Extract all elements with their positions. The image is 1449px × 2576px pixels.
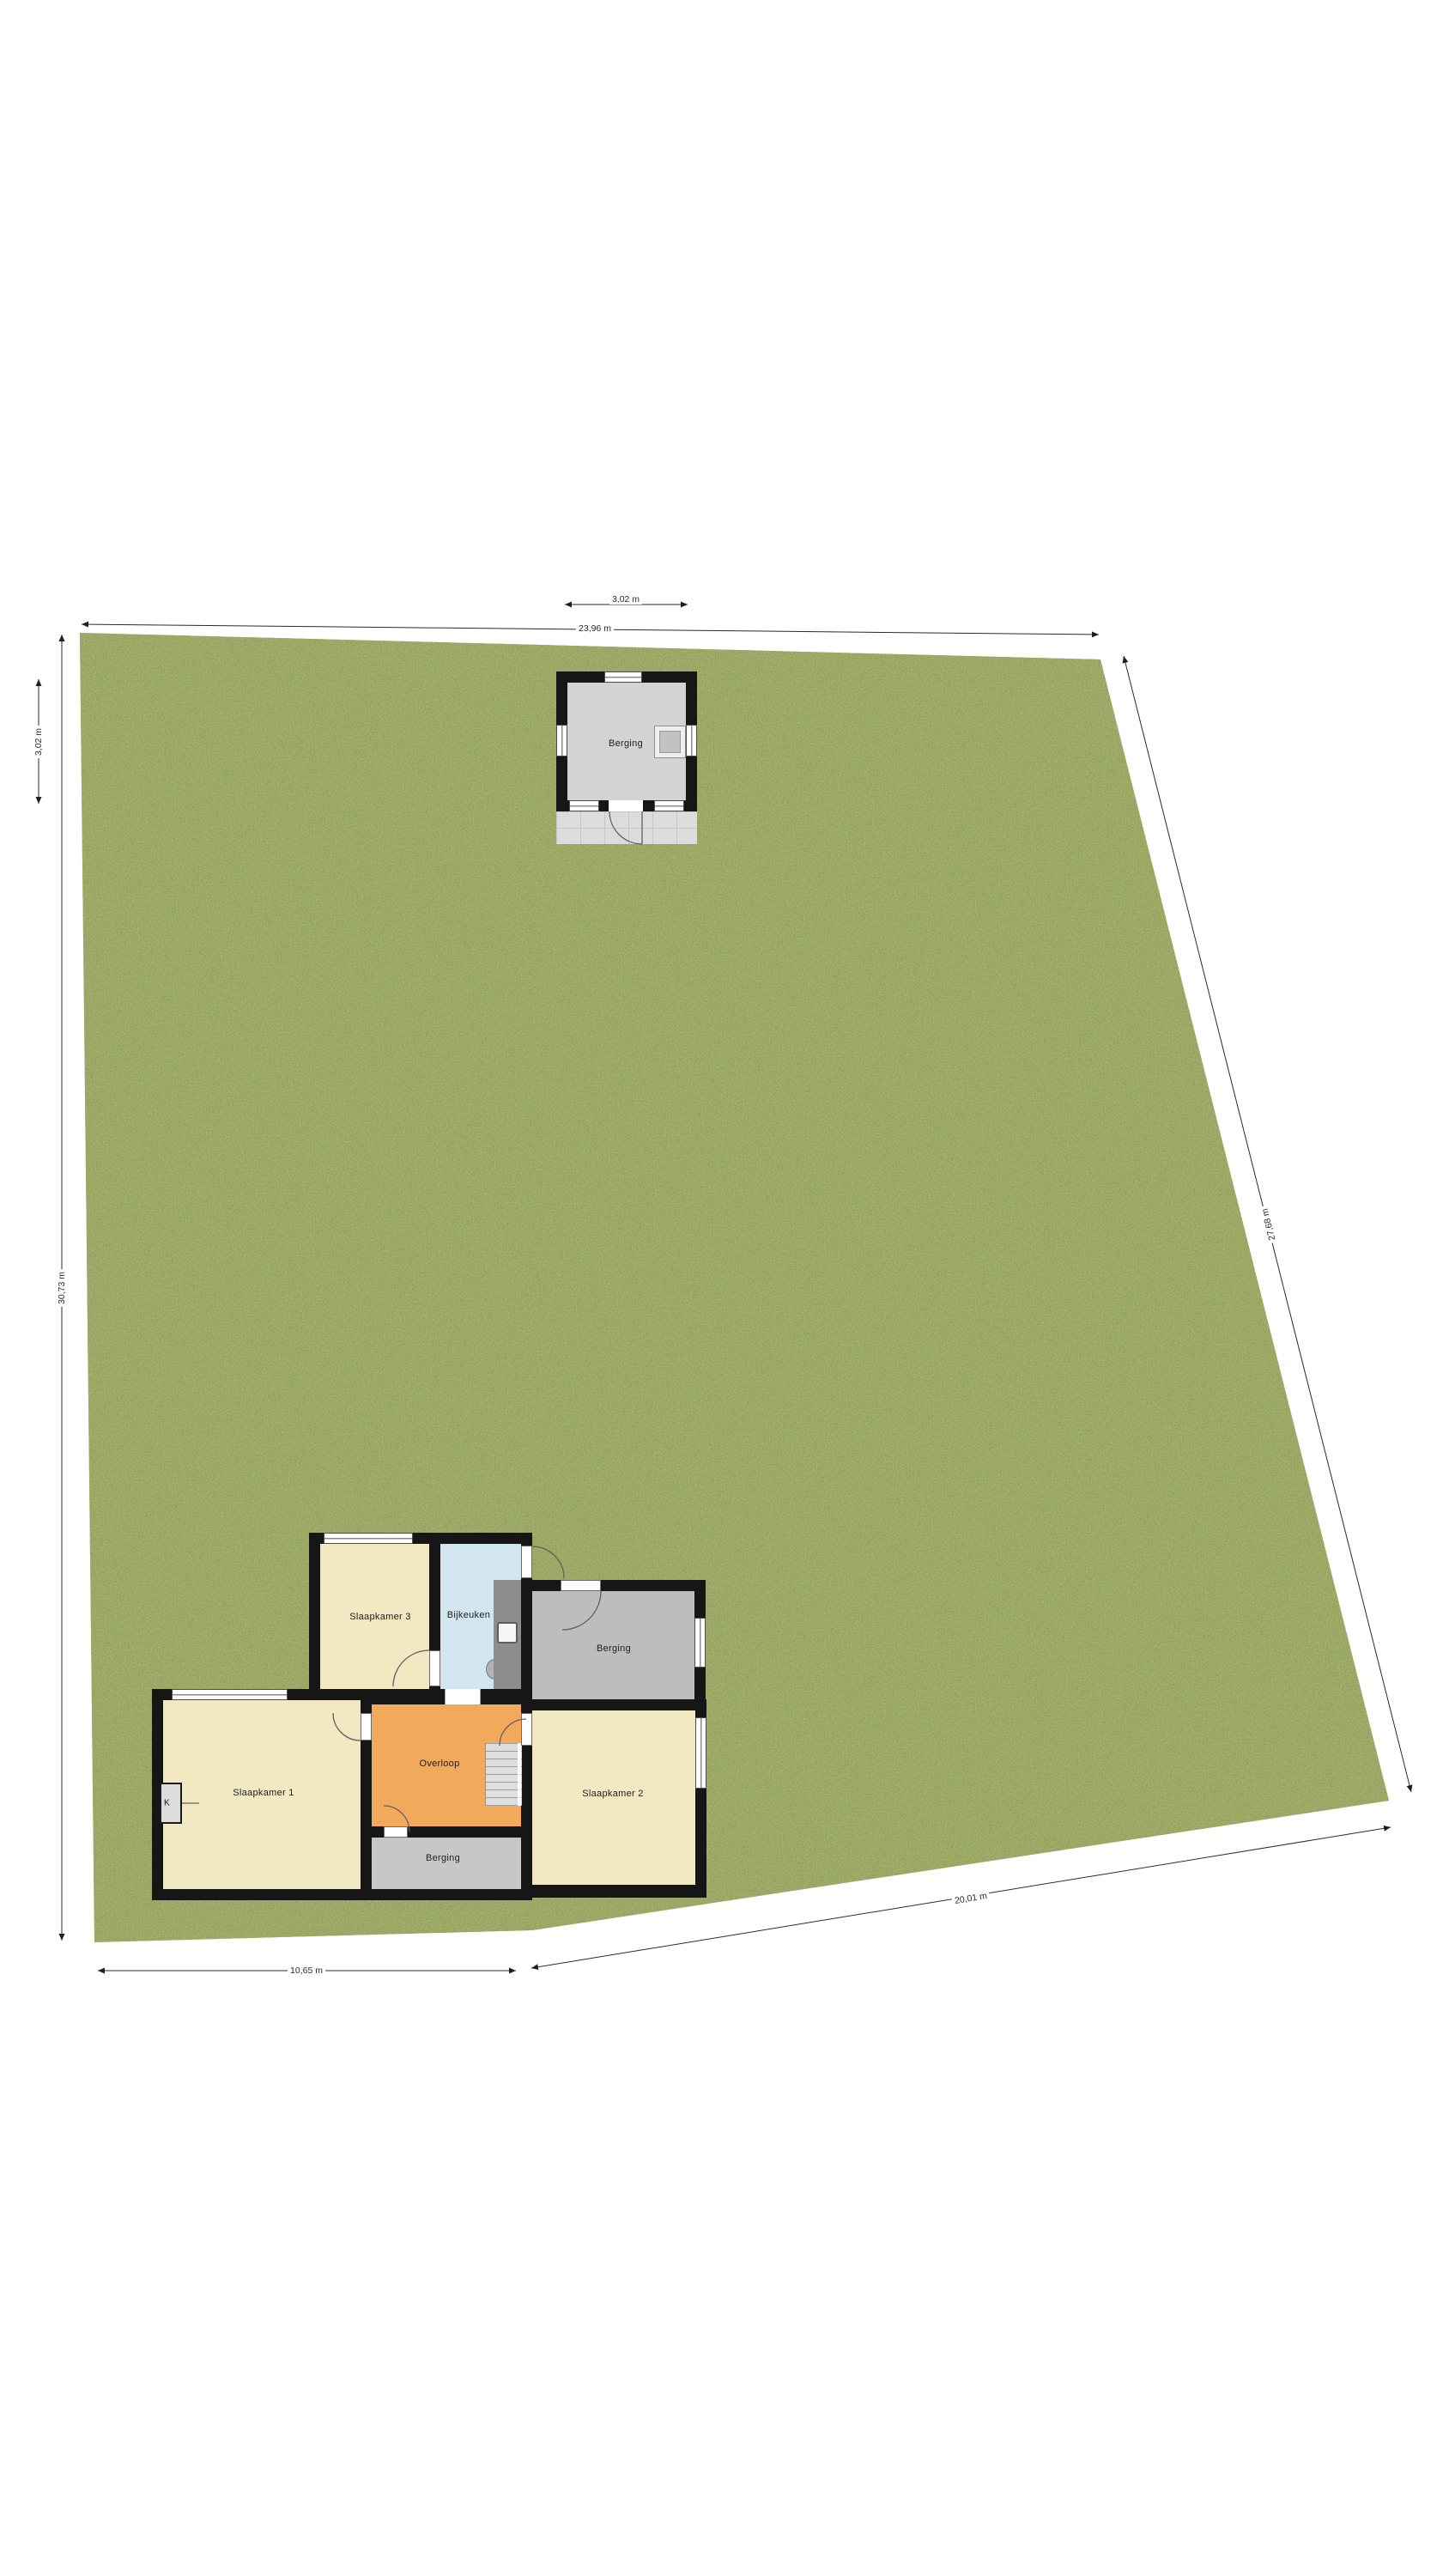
dim-shed-depth: 3,02 m — [33, 726, 44, 758]
kitchen-sink — [497, 1622, 518, 1643]
slaapkamer1-window — [172, 1689, 288, 1700]
berging-upper-label: Berging — [597, 1643, 631, 1654]
k-shaft-box: K — [160, 1783, 182, 1824]
door-overloop-berging — [384, 1826, 408, 1838]
slaapkamer1-label: Slaapkamer 1 — [233, 1788, 294, 1798]
shed-window-bottom-right — [654, 800, 684, 811]
slaapkamer3-window — [324, 1533, 413, 1544]
dim-plot-bottom-right: 20,01 m — [951, 1891, 990, 1907]
shed-window-left — [556, 725, 567, 756]
dim-plot-bottom-left: 10,65 m — [288, 1965, 325, 1976]
passage-bijkeuken-overloop — [445, 1689, 481, 1704]
dim-shed-width: 3,02 m — [609, 594, 642, 605]
overloop-label: Overloop — [419, 1759, 459, 1769]
shed-window-right — [686, 725, 697, 756]
dim-plot-right: 27,68 m — [1259, 1205, 1278, 1244]
berging-lower-label: Berging — [426, 1853, 460, 1863]
door-slaapkamer1-overloop — [361, 1713, 372, 1741]
shed-window-bottom-left — [569, 800, 599, 811]
door-slaapkamer3-bijkeuken — [429, 1650, 440, 1686]
staircase — [485, 1743, 522, 1806]
door-overloop-slaapkamer2 — [521, 1713, 532, 1746]
shed-window-top — [604, 671, 642, 683]
k-shaft-label: K — [164, 1799, 170, 1808]
room-berging-lower — [372, 1838, 521, 1889]
door-berging-upper — [561, 1580, 601, 1591]
dim-plot-top: 23,96 m — [576, 623, 614, 634]
slaapkamer2-label: Slaapkamer 2 — [582, 1789, 643, 1799]
staircase-side-gap — [518, 1743, 521, 1806]
bijkeuken-label: Bijkeuken — [447, 1610, 490, 1620]
bijkeuken-exterior-door-arc — [532, 1546, 564, 1578]
shed-door-gap — [609, 800, 643, 811]
shed-patio — [556, 811, 697, 844]
floorplan-canvas: K Berging Slaapkamer 3 Bijkeuken Berging — [0, 0, 1449, 2576]
garden-plot-layer — [0, 0, 1449, 2576]
shed-label: Berging — [609, 738, 643, 749]
berging-upper-window — [694, 1618, 706, 1668]
door-bijkeuken-exterior — [521, 1546, 532, 1578]
annotation-layer — [0, 0, 1449, 2576]
slaapkamer2-window — [695, 1717, 706, 1789]
dim-plot-left: 30,73 m — [57, 1269, 67, 1307]
shed-fixture-inner — [659, 731, 681, 753]
slaapkamer3-label: Slaapkamer 3 — [349, 1612, 410, 1622]
